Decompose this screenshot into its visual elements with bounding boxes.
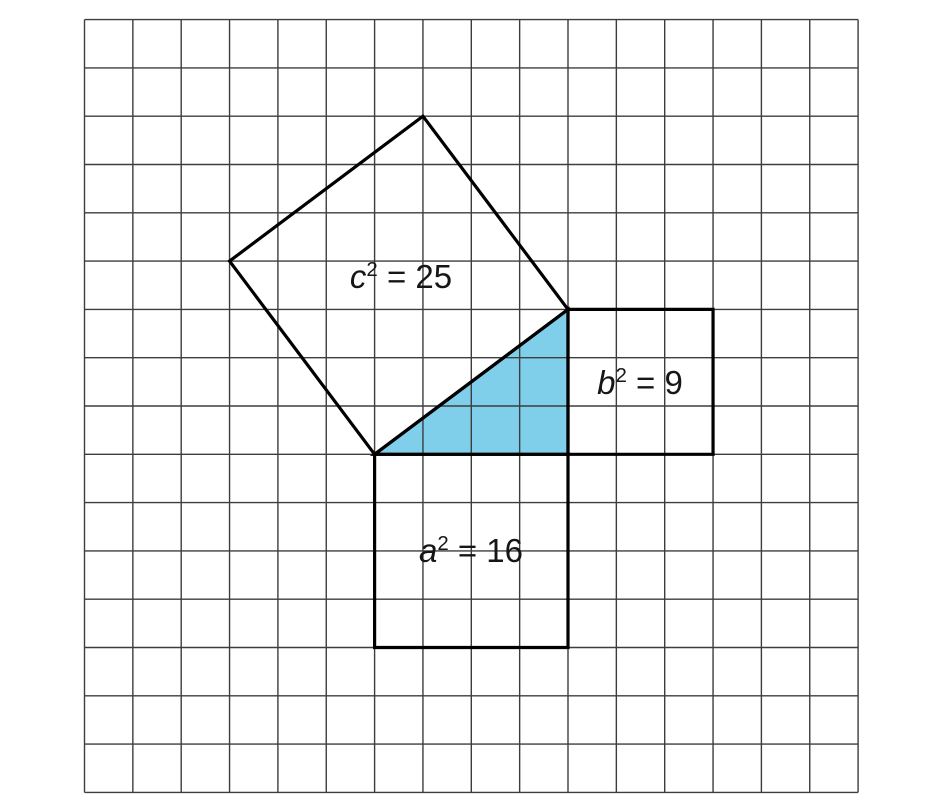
- a-variable: a: [419, 532, 437, 569]
- c-variable: c: [350, 258, 367, 295]
- pythagorean-diagram: [0, 0, 943, 812]
- c-exponent: 2: [366, 258, 377, 281]
- a-exponent: 2: [437, 532, 448, 555]
- b-square-label: b2 = 9: [597, 365, 683, 401]
- b-equation: = 9: [627, 364, 683, 401]
- grid-lines: [85, 20, 859, 793]
- pythagorean-theorem-figure: c2 = 25 b2 = 9 a2 = 16: [0, 0, 943, 812]
- b-exponent: 2: [616, 364, 627, 387]
- c-equation: = 25: [378, 258, 452, 295]
- a-equation: = 16: [449, 532, 523, 569]
- a-square-label: a2 = 16: [419, 533, 523, 569]
- c-square-label: c2 = 25: [350, 259, 452, 295]
- b-variable: b: [597, 364, 615, 401]
